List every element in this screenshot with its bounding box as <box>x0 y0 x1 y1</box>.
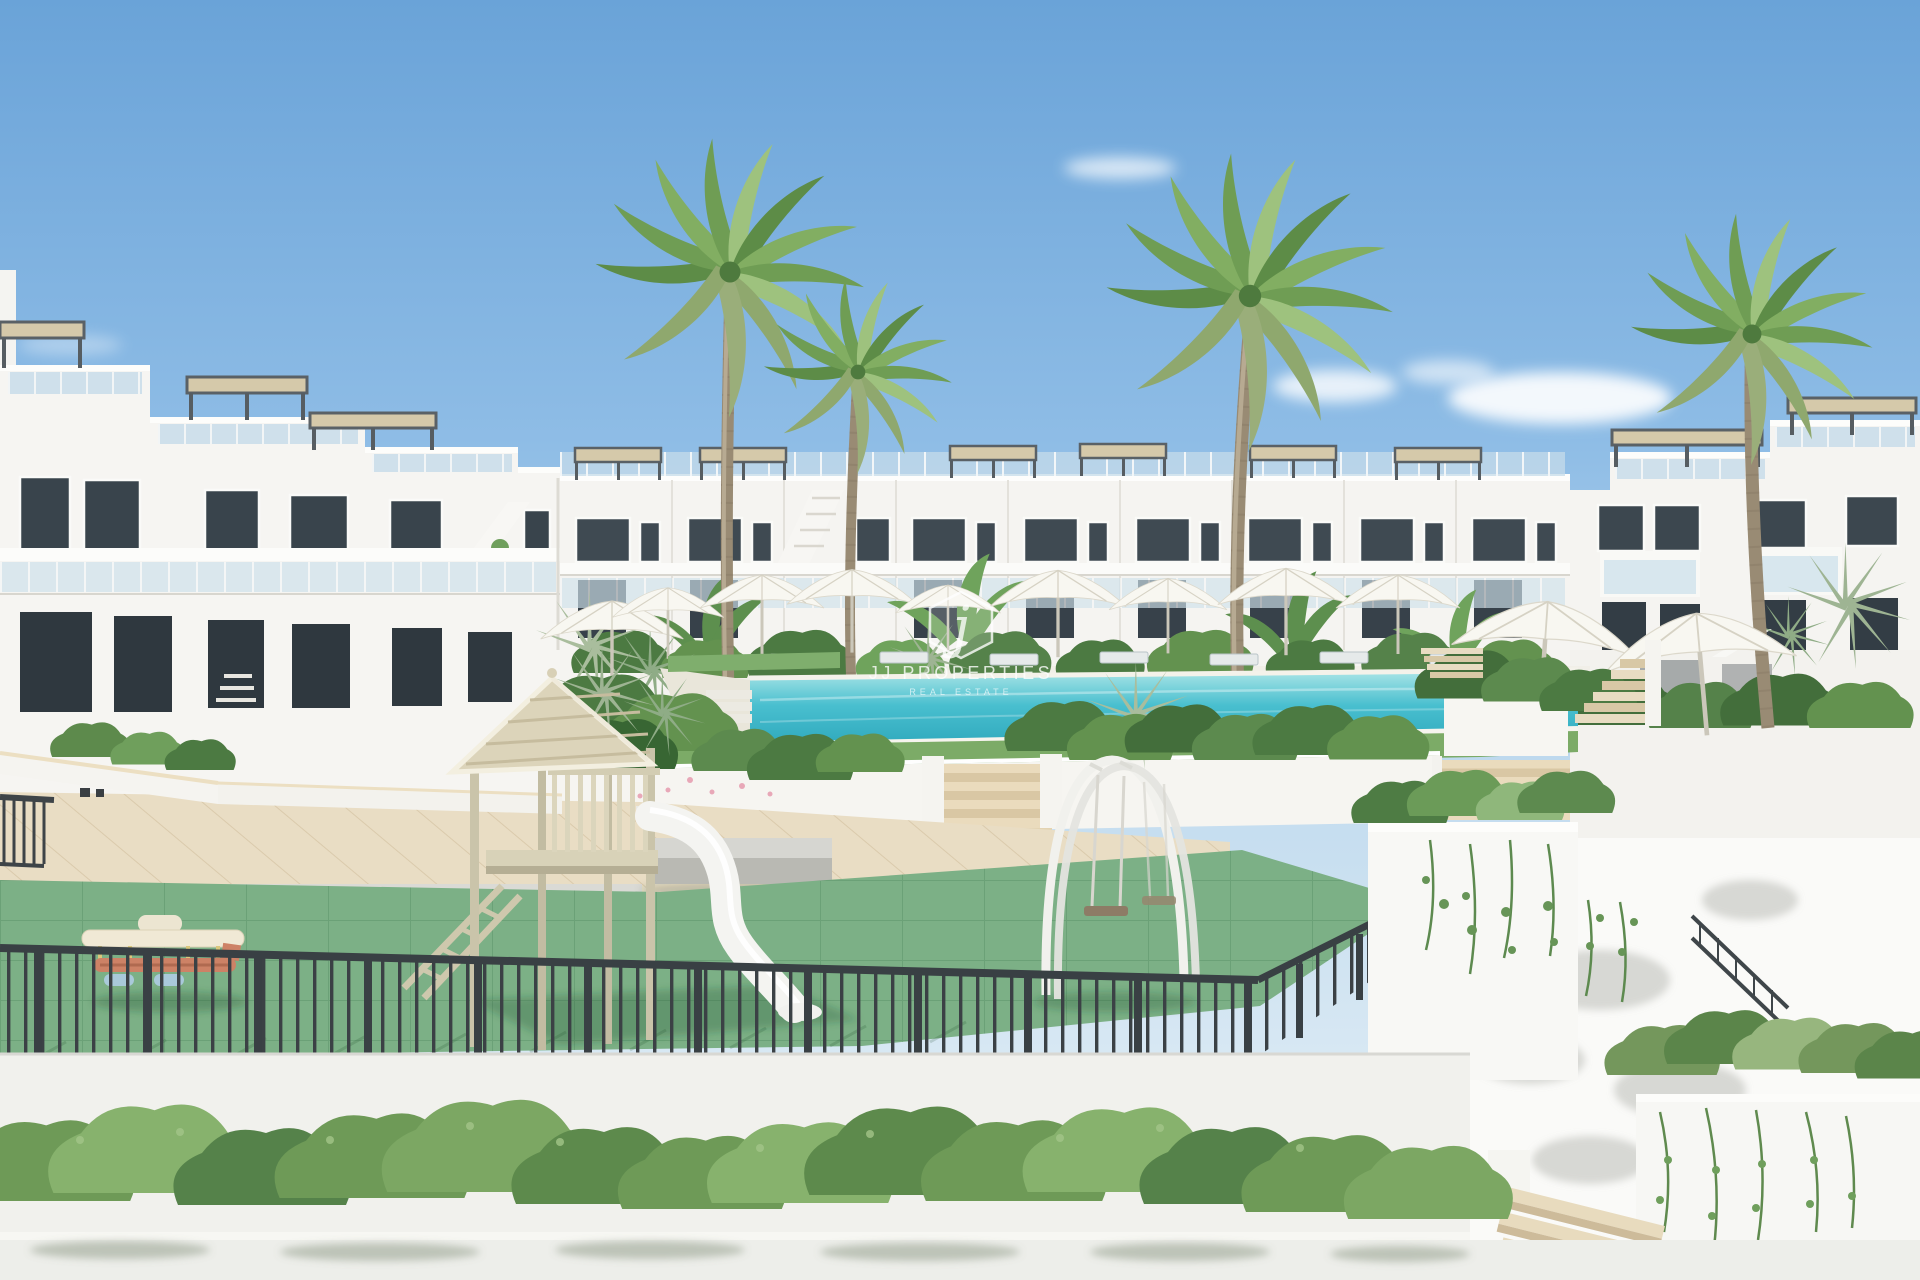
watermark-brand: JJ PROPERTIES <box>869 663 1053 683</box>
watermark-tagline: REAL ESTATE <box>909 687 1012 697</box>
render-canvas: j JJ PROPERTIES REAL ESTATE <box>0 0 1920 1280</box>
